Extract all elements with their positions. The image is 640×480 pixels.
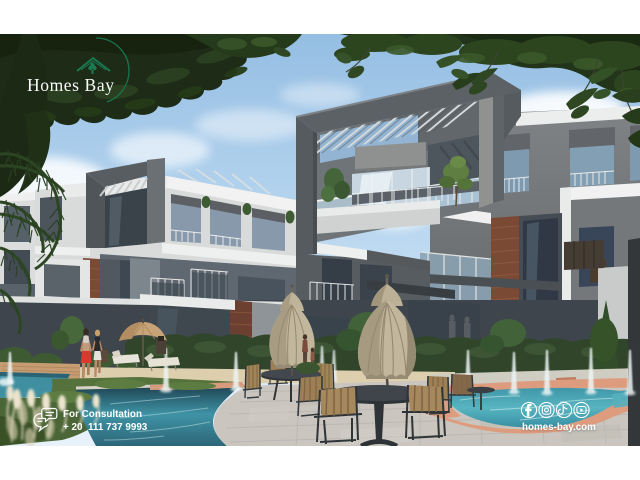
- svg-text:+ 20 111 737 9993: + 20 111 737 9993: [63, 422, 148, 433]
- svg-text:Homes Bay: Homes Bay: [27, 75, 115, 95]
- svg-text:homes-bay.com: homes-bay.com: [522, 422, 596, 433]
- svg-text:For Consultation: For Consultation: [63, 409, 142, 420]
